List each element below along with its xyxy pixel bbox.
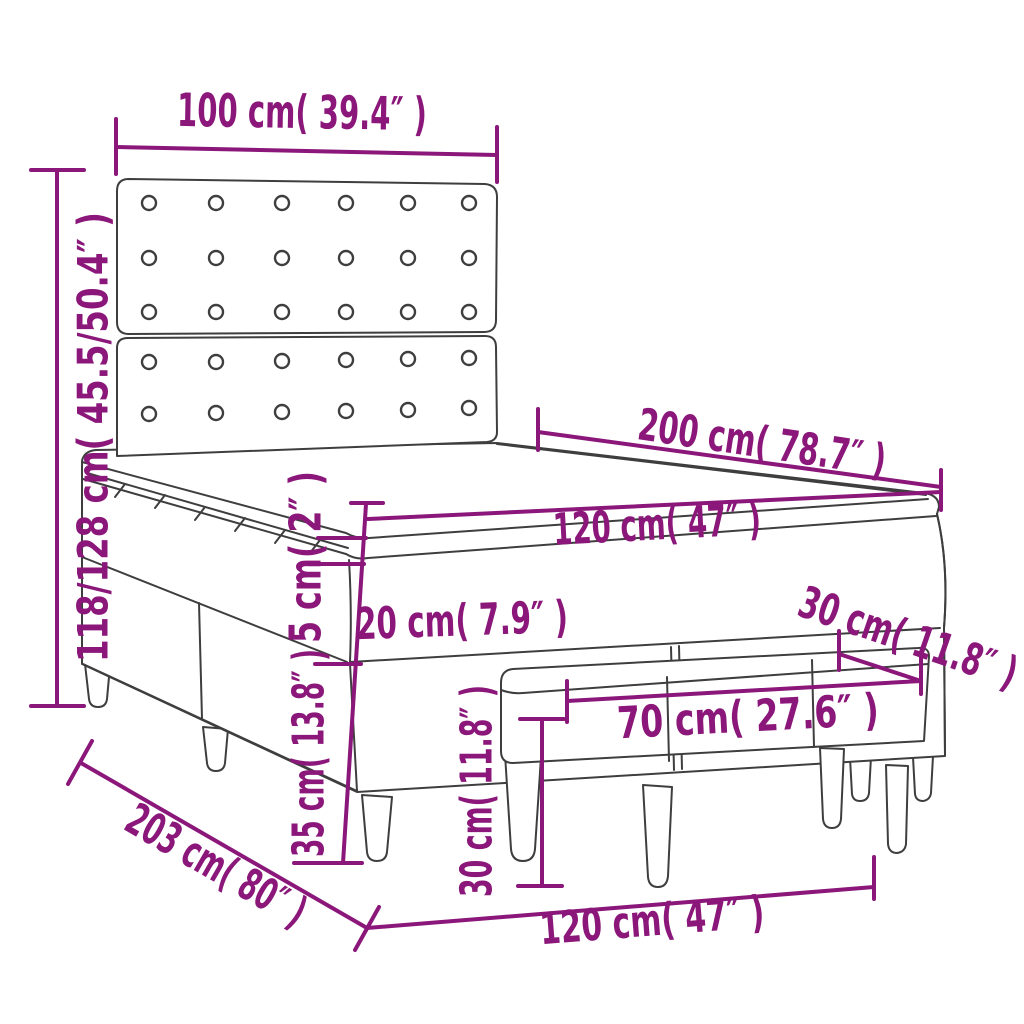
bench-leg — [820, 748, 844, 828]
headboard-upper-panel — [117, 179, 497, 334]
bed-leg — [203, 727, 228, 771]
bench-leg — [643, 785, 672, 887]
dim-base-height-label: 35 cm( 13.8″ ) — [284, 649, 335, 857]
bench-leg — [886, 765, 908, 853]
bed-leg — [362, 795, 392, 861]
headboard — [117, 179, 497, 456]
dim-headboard-width-label: 100 cm( 39.4″ ) — [177, 83, 428, 141]
dim-bed-width: 120 cm( 47″ ) — [367, 857, 874, 955]
bed-dimension-diagram: 100 cm( 39.4″ ) 118/128 cm( 45.5/50.4″ )… — [0, 0, 1024, 1024]
dim-bed-height-label: 118/128 cm( 45.5/50.4″ ) — [69, 212, 118, 662]
dim-topper-thickness-label: 5 cm( 2″ ) — [281, 471, 332, 643]
tick — [68, 741, 92, 784]
dim-bed-height: 118/128 cm( 45.5/50.4″ ) — [31, 170, 118, 706]
headboard-lower-panel — [117, 336, 497, 456]
diagram-canvas: 100 cm( 39.4″ ) 118/128 cm( 45.5/50.4″ )… — [0, 0, 1024, 1024]
bench-leg — [505, 754, 541, 861]
dim-bench-height-label: 30 cm( 11.8″ ) — [452, 685, 503, 897]
dim-bed-width-label: 120 cm( 47″ ) — [538, 887, 766, 955]
dim-mattress-width-label: 120 cm( 47″ ) — [552, 494, 762, 556]
bed-leg — [913, 756, 933, 801]
dim-headboard-width: 100 cm( 39.4″ ) — [116, 83, 497, 182]
dim-mattress-thickness-label: 20 cm( 7.9″ ) — [355, 592, 569, 650]
bed-leg — [850, 757, 871, 801]
